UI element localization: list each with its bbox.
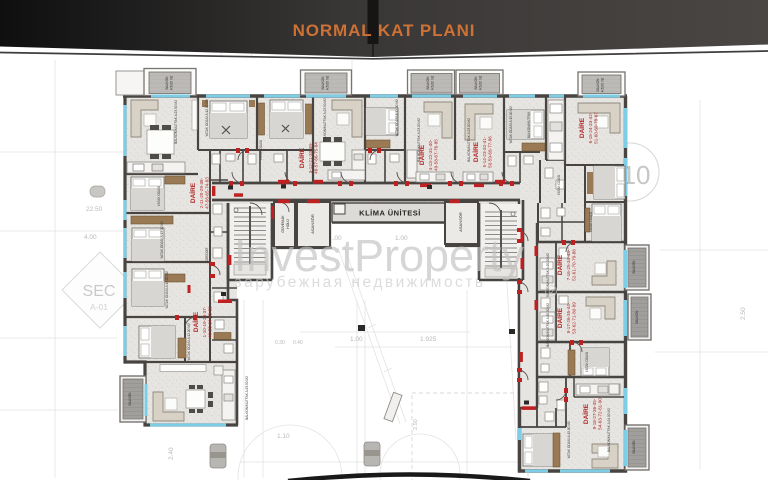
svg-text:BALKON: BALKON xyxy=(321,76,325,90)
svg-text:BALKON: BALKON xyxy=(632,440,636,454)
svg-text:BALKON: BALKON xyxy=(474,76,478,90)
svg-text:BALKON/MUTFAK A:23.00 M2: BALKON/MUTFAK A:23.00 M2 xyxy=(417,118,421,162)
svg-text:8-17-26-35-44-: 8-17-26-35-44- xyxy=(566,302,571,333)
svg-text:BALKON: BALKON xyxy=(635,310,639,324)
svg-text:47-56-65-74-83: 47-56-65-74-83 xyxy=(205,177,210,209)
svg-text:YATAK ODASI A:12.00 M2: YATAK ODASI A:12.00 M2 xyxy=(187,323,191,361)
svg-text:46-55-64-73-82: 46-55-64-73-82 xyxy=(208,306,213,338)
svg-text:A:6.00 m2: A:6.00 m2 xyxy=(326,76,330,91)
svg-text:51-60-69-78-87: 51-60-69-78-87 xyxy=(594,112,599,144)
svg-text:BALKON: BALKON xyxy=(128,392,132,406)
svg-text:YATAK ODASI A:15.00 M2: YATAK ODASI A:15.00 M2 xyxy=(567,421,571,459)
svg-text:53-62-71-80-89: 53-62-71-80-89 xyxy=(572,302,577,334)
svg-text:A:6.00 m2: A:6.00 m2 xyxy=(601,78,605,93)
svg-text:50-59-68-77-86: 50-59-68-77-86 xyxy=(488,136,493,168)
svg-text:HOLÜ: HOLÜ xyxy=(286,219,290,229)
svg-text:YATAK ODASI A:12.00 M2: YATAK ODASI A:12.00 M2 xyxy=(205,99,209,137)
svg-text:BALKON: BALKON xyxy=(426,76,430,90)
svg-text:YATAK ODASI: YATAK ODASI xyxy=(259,140,263,161)
svg-text:0.30: 0.30 xyxy=(275,340,285,346)
svg-text:BALKON: BALKON xyxy=(596,78,600,92)
svg-text:BALKON/MUTFAK: BALKON/MUTFAK xyxy=(527,111,531,139)
svg-text:2.40: 2.40 xyxy=(168,447,175,460)
svg-text:YATAK ODASI: YATAK ODASI xyxy=(589,212,593,233)
svg-text:DAİRE: DAİRE xyxy=(472,141,480,162)
svg-text:2.50: 2.50 xyxy=(413,419,419,430)
svg-text:YATAK ODASI A:15.00 M2: YATAK ODASI A:15.00 M2 xyxy=(509,106,513,144)
svg-text:4-13-22-31-40-: 4-13-22-31-40- xyxy=(428,139,433,170)
svg-text:DAİRE: DAİRE xyxy=(298,147,306,168)
svg-text:YATAK ODASI A:13.00 M2: YATAK ODASI A:13.00 M2 xyxy=(165,271,169,309)
svg-text:A-01: A-01 xyxy=(90,302,108,312)
svg-text:6-15-24-33-42-: 6-15-24-33-42- xyxy=(588,112,593,143)
svg-text:1-10-19-28-37-: 1-10-19-28-37- xyxy=(202,306,207,337)
svg-text:BALKON/MUTFAK A:23.00 M2: BALKON/MUTFAK A:23.00 M2 xyxy=(467,118,471,162)
svg-text:DAİRE: DAİRE xyxy=(192,311,200,332)
svg-text:BALKON: BALKON xyxy=(165,76,169,90)
svg-text:BALKON: BALKON xyxy=(632,260,636,274)
svg-text:49-58-67-76-85: 49-58-67-76-85 xyxy=(434,139,439,171)
svg-text:52-61-70-79-88: 52-61-70-79-88 xyxy=(572,249,577,281)
svg-text:DAİRE: DAİRE xyxy=(189,182,197,203)
svg-text:2.50: 2.50 xyxy=(740,307,747,320)
svg-text:A:6.00 m2: A:6.00 m2 xyxy=(170,76,174,91)
svg-text:YATAK ODASI A:12.00 M2: YATAK ODASI A:12.00 M2 xyxy=(395,99,399,137)
svg-text:3-12-21-30-39-: 3-12-21-30-39- xyxy=(308,142,313,173)
svg-text:зарубежная недвижимость: зарубежная недвижимость xyxy=(234,274,485,291)
svg-text:1.925: 1.925 xyxy=(420,336,437,343)
svg-text:1.00: 1.00 xyxy=(350,336,363,343)
svg-text:YATAK ODASI: YATAK ODASI xyxy=(557,175,561,196)
svg-text:NORMAL KAT PLANI: NORMAL KAT PLANI xyxy=(293,21,476,40)
svg-text:R: R xyxy=(548,288,554,297)
svg-text:BALKON/MUTFAK A:20.00 M2: BALKON/MUTFAK A:20.00 M2 xyxy=(546,303,550,347)
svg-text:ASANSÖR: ASANSÖR xyxy=(458,212,463,232)
svg-text:BALKON/MUTFAK A:23.50 M2: BALKON/MUTFAK A:23.50 M2 xyxy=(245,376,249,420)
svg-text:1.10: 1.10 xyxy=(277,433,290,440)
svg-text:A:6.00 m2: A:6.00 m2 xyxy=(431,76,435,91)
svg-text:9-18-27-36-45-: 9-18-27-36-45- xyxy=(592,398,597,429)
svg-text:48-57-66-75-84: 48-57-66-75-84 xyxy=(314,142,319,174)
svg-text:DAİRE: DAİRE xyxy=(578,117,586,138)
svg-text:SEC: SEC xyxy=(83,283,116,300)
svg-text:DAİRE: DAİRE xyxy=(556,254,564,275)
svg-text:A:6.00 m2: A:6.00 m2 xyxy=(479,76,483,91)
svg-text:BALKON/MUTFAK A:23.50 M2: BALKON/MUTFAK A:23.50 M2 xyxy=(323,98,327,142)
svg-text:DAİRE: DAİRE xyxy=(582,403,590,424)
svg-text:YATAK ODASI: YATAK ODASI xyxy=(157,186,161,207)
svg-text:5-14-23-32-41-: 5-14-23-32-41- xyxy=(482,136,487,167)
svg-text:2-11-20-29-38-: 2-11-20-29-38- xyxy=(199,177,204,208)
svg-text:KLİMA ÜNİTESİ: KLİMA ÜNİTESİ xyxy=(359,209,421,218)
svg-text:DAİRE: DAİRE xyxy=(556,307,564,328)
svg-text:54-63-72-81-90: 54-63-72-81-90 xyxy=(598,398,603,430)
svg-text:BALKON/MUTFAK A:23.50 M2: BALKON/MUTFAK A:23.50 M2 xyxy=(174,100,178,144)
svg-text:YATAK ODASI: YATAK ODASI xyxy=(585,352,589,373)
svg-text:0.40: 0.40 xyxy=(293,340,303,346)
svg-text:4.00: 4.00 xyxy=(84,234,97,241)
svg-text:BALKON/MUTFAK A:24.00 M2: BALKON/MUTFAK A:24.00 M2 xyxy=(607,408,611,452)
svg-text:KORIDOR: KORIDOR xyxy=(205,247,209,263)
svg-text:22.50: 22.50 xyxy=(86,206,103,213)
svg-text:7-16-25-34-43-: 7-16-25-34-43- xyxy=(566,249,571,280)
svg-text:YATAK ODASI A:13.00 M2: YATAK ODASI A:13.00 M2 xyxy=(160,221,164,259)
